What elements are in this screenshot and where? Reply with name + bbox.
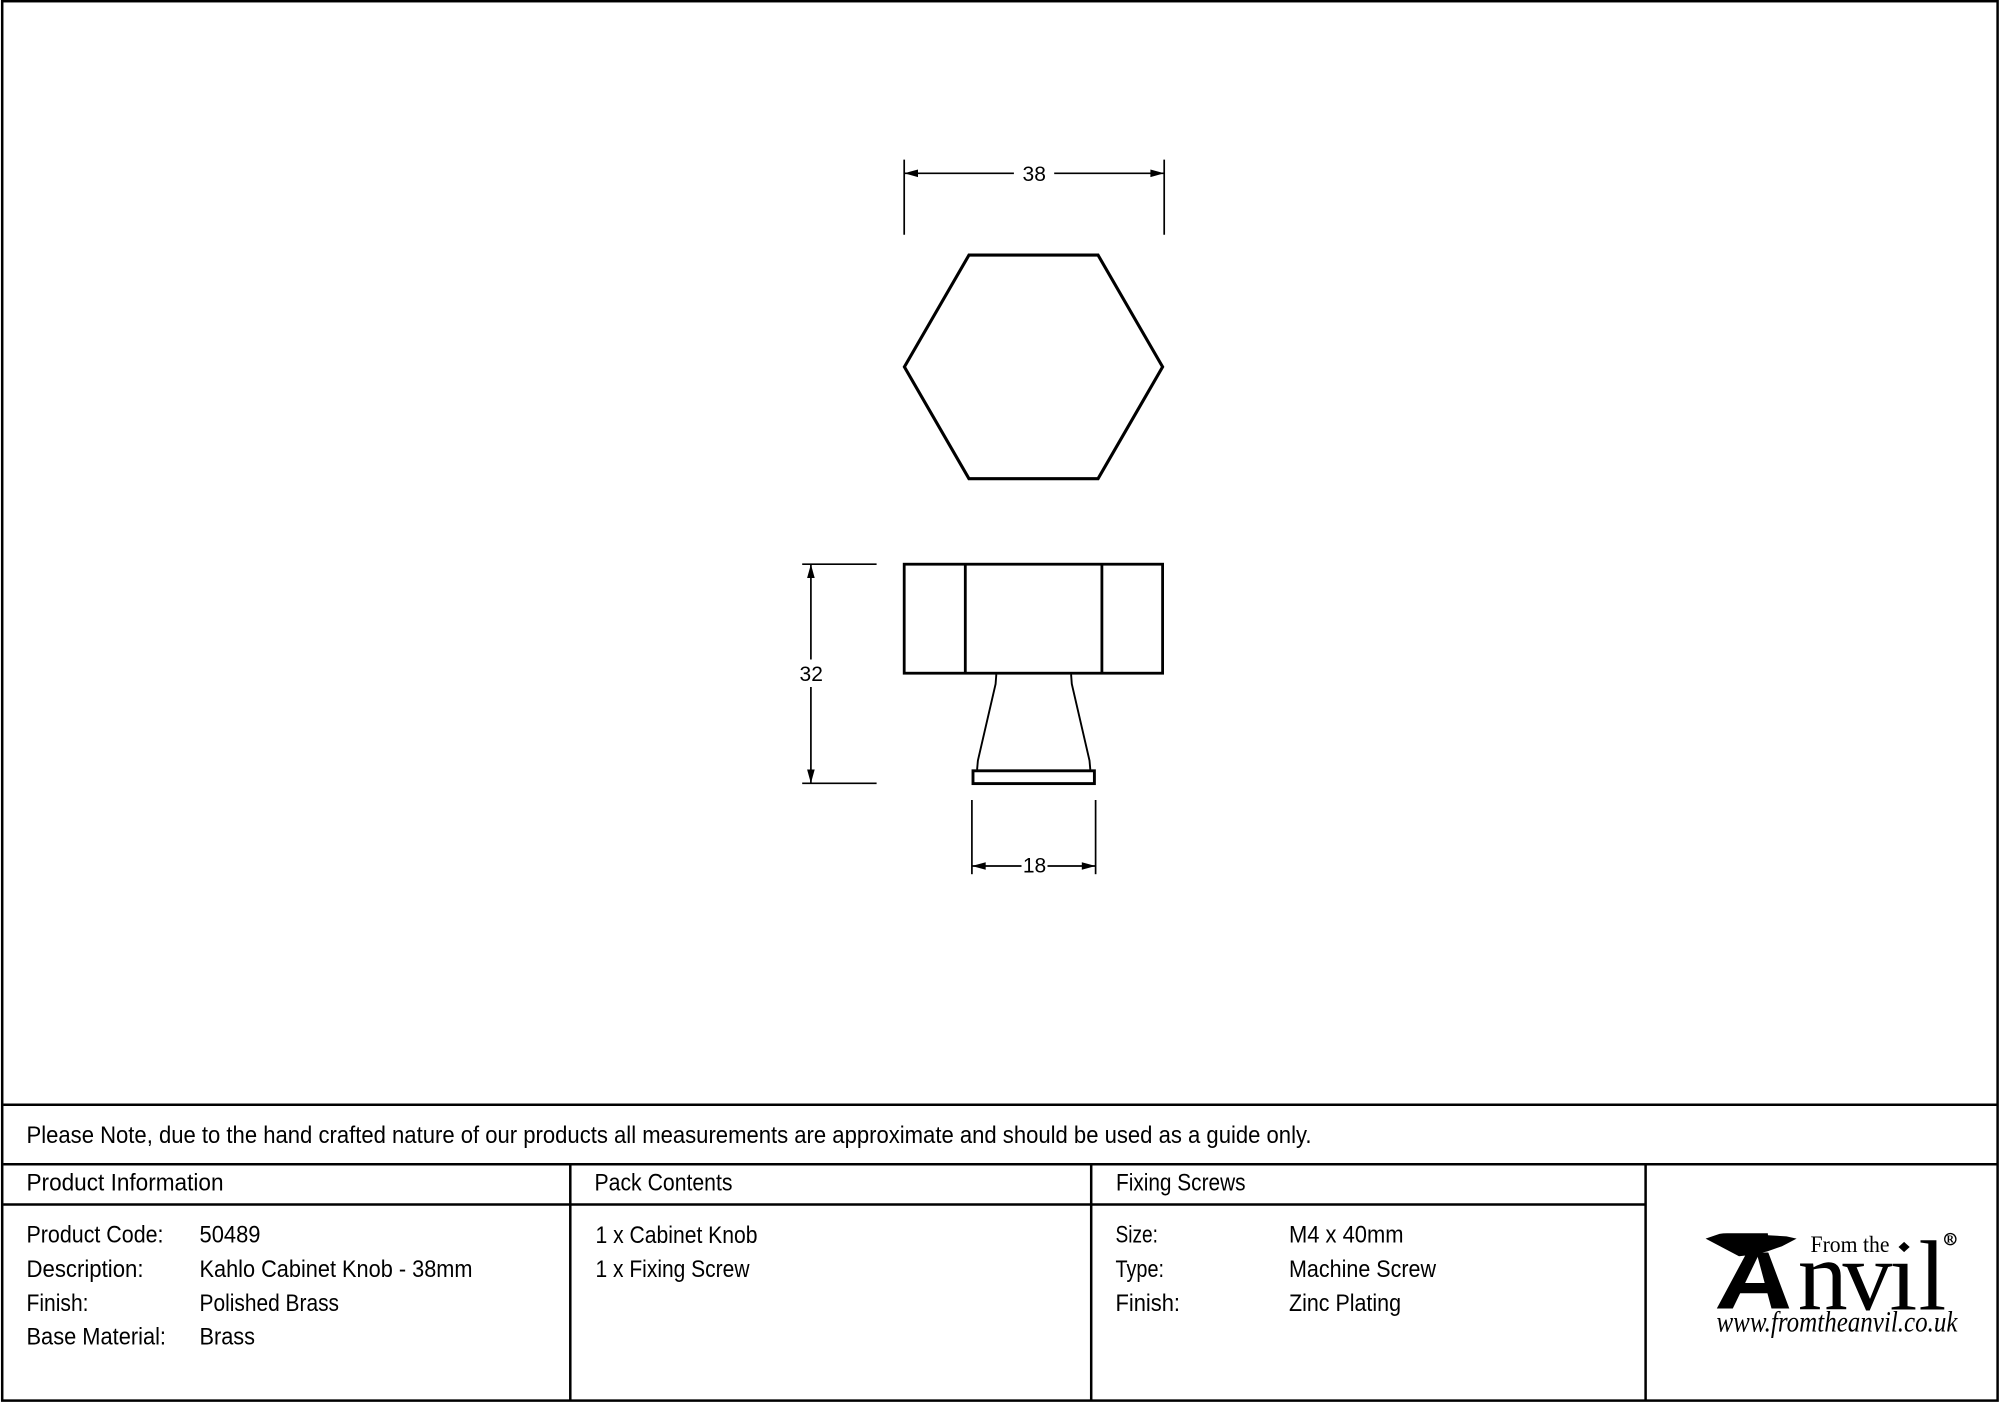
svg-text:M4 x 40mm: M4 x 40mm <box>1289 1222 1404 1249</box>
svg-text:Description:: Description: <box>27 1256 144 1283</box>
svg-text:50489: 50489 <box>200 1222 261 1249</box>
svg-text:Machine Screw: Machine Screw <box>1289 1256 1437 1283</box>
svg-text:1 x Fixing Screw: 1 x Fixing Screw <box>596 1256 751 1283</box>
svg-text:Polished Brass: Polished Brass <box>200 1290 340 1317</box>
svg-text:18: 18 <box>1023 855 1046 878</box>
svg-text:Fixing Screws: Fixing Screws <box>1116 1170 1246 1197</box>
svg-text:Product Code:: Product Code: <box>27 1222 164 1249</box>
svg-text:Kahlo Cabinet Knob - 38mm: Kahlo Cabinet Knob - 38mm <box>200 1256 473 1283</box>
svg-text:Pack Contents: Pack Contents <box>595 1170 733 1197</box>
svg-text:R: R <box>1947 1235 1955 1246</box>
svg-text:Please Note, due to the hand c: Please Note, due to the hand crafted nat… <box>27 1122 1312 1149</box>
svg-text:Finish:: Finish: <box>27 1290 89 1317</box>
svg-text:Brass: Brass <box>200 1324 256 1351</box>
svg-text:38: 38 <box>1023 163 1046 186</box>
svg-text:32: 32 <box>800 663 823 686</box>
svg-text:Zinc Plating: Zinc Plating <box>1289 1290 1401 1317</box>
svg-text:Finish:: Finish: <box>1116 1290 1181 1317</box>
svg-text:Base Material:: Base Material: <box>27 1324 167 1351</box>
svg-text:Product Information: Product Information <box>27 1170 224 1197</box>
svg-text:Type:: Type: <box>1116 1256 1165 1283</box>
svg-text:www.fromtheanvil.co.uk: www.fromtheanvil.co.uk <box>1717 1306 1959 1339</box>
svg-text:1 x Cabinet Knob: 1 x Cabinet Knob <box>596 1222 758 1249</box>
svg-text:Size:: Size: <box>1116 1222 1159 1249</box>
